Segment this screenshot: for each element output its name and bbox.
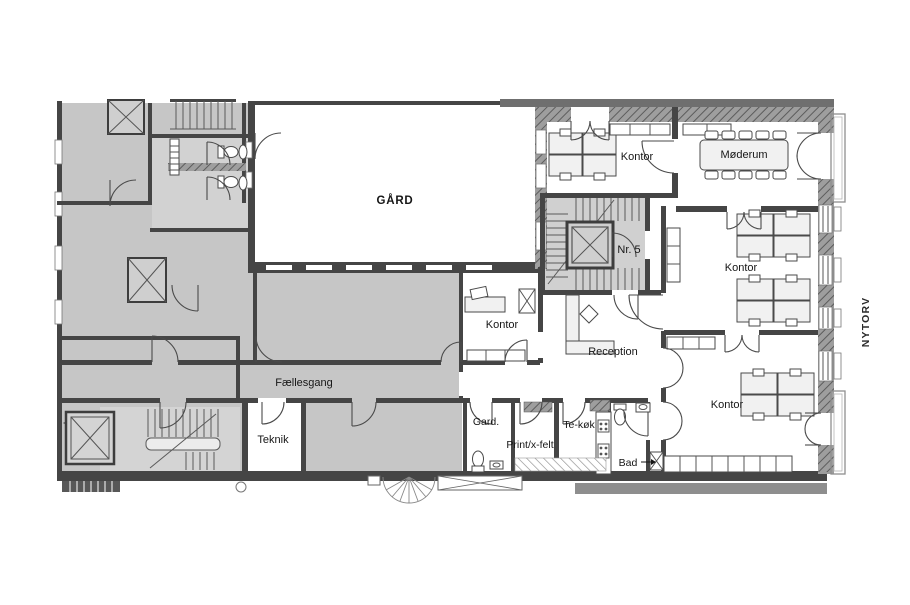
room-label-faellesgang: Fællesgang <box>275 377 332 389</box>
cabinet-row <box>610 124 670 135</box>
room-label-kontor-e: Kontor <box>725 262 758 274</box>
room-label-moederum: Møderum <box>720 149 767 161</box>
room-label-kontor-mid: Kontor <box>486 319 519 331</box>
corridor-cabinet <box>524 402 552 412</box>
room-label-kontor-s: Kontor <box>711 399 744 411</box>
room-label-reception: Reception <box>588 346 638 358</box>
desk-cluster-east-2 <box>737 275 810 326</box>
room-label-tekoek: Te-køk <box>563 419 595 431</box>
room-label-print: Print/x-felt <box>506 439 553 451</box>
cabinet-row <box>667 337 715 349</box>
elevator-icon <box>108 100 144 134</box>
room-label-garderobe: Gard. <box>473 416 499 428</box>
small-hatch <box>368 476 380 485</box>
radiator-icon <box>170 139 179 175</box>
room-label-kontor-nw: Kontor <box>621 151 654 163</box>
floor-plan-page: GÅRD Kontor Møderum Nr. 5 Kontor Kontor … <box>0 0 910 605</box>
sink-icon <box>490 461 503 469</box>
room-label-bad: Bad <box>619 457 638 469</box>
desk-cluster-east-1 <box>737 210 810 261</box>
floor-plan: GÅRD Kontor Møderum Nr. 5 Kontor Kontor … <box>0 0 910 605</box>
bollard-icon <box>236 482 246 492</box>
room-label-teknik: Teknik <box>257 434 289 446</box>
duct-shaft-icon <box>519 289 535 313</box>
sidewalk <box>575 483 827 494</box>
elevator-icon <box>66 412 114 464</box>
room-label-nr5: Nr. 5 <box>617 244 640 256</box>
elevator-icon <box>128 258 166 302</box>
desk-cluster-south <box>741 369 814 420</box>
sink-icon <box>636 403 650 412</box>
room-label-gaard: GÅRD <box>376 194 413 207</box>
corridor-faellesgang <box>57 363 462 402</box>
elevator-icon <box>567 222 613 268</box>
street-label-nytorv: NYTORV <box>860 297 872 348</box>
sink-icon <box>239 176 247 190</box>
x-felt-floor-marking <box>515 458 606 471</box>
cabinet-row-south-wall <box>664 456 792 472</box>
sink-icon <box>239 145 247 159</box>
cabinet-row <box>667 228 680 282</box>
toilet-icon <box>472 451 484 472</box>
